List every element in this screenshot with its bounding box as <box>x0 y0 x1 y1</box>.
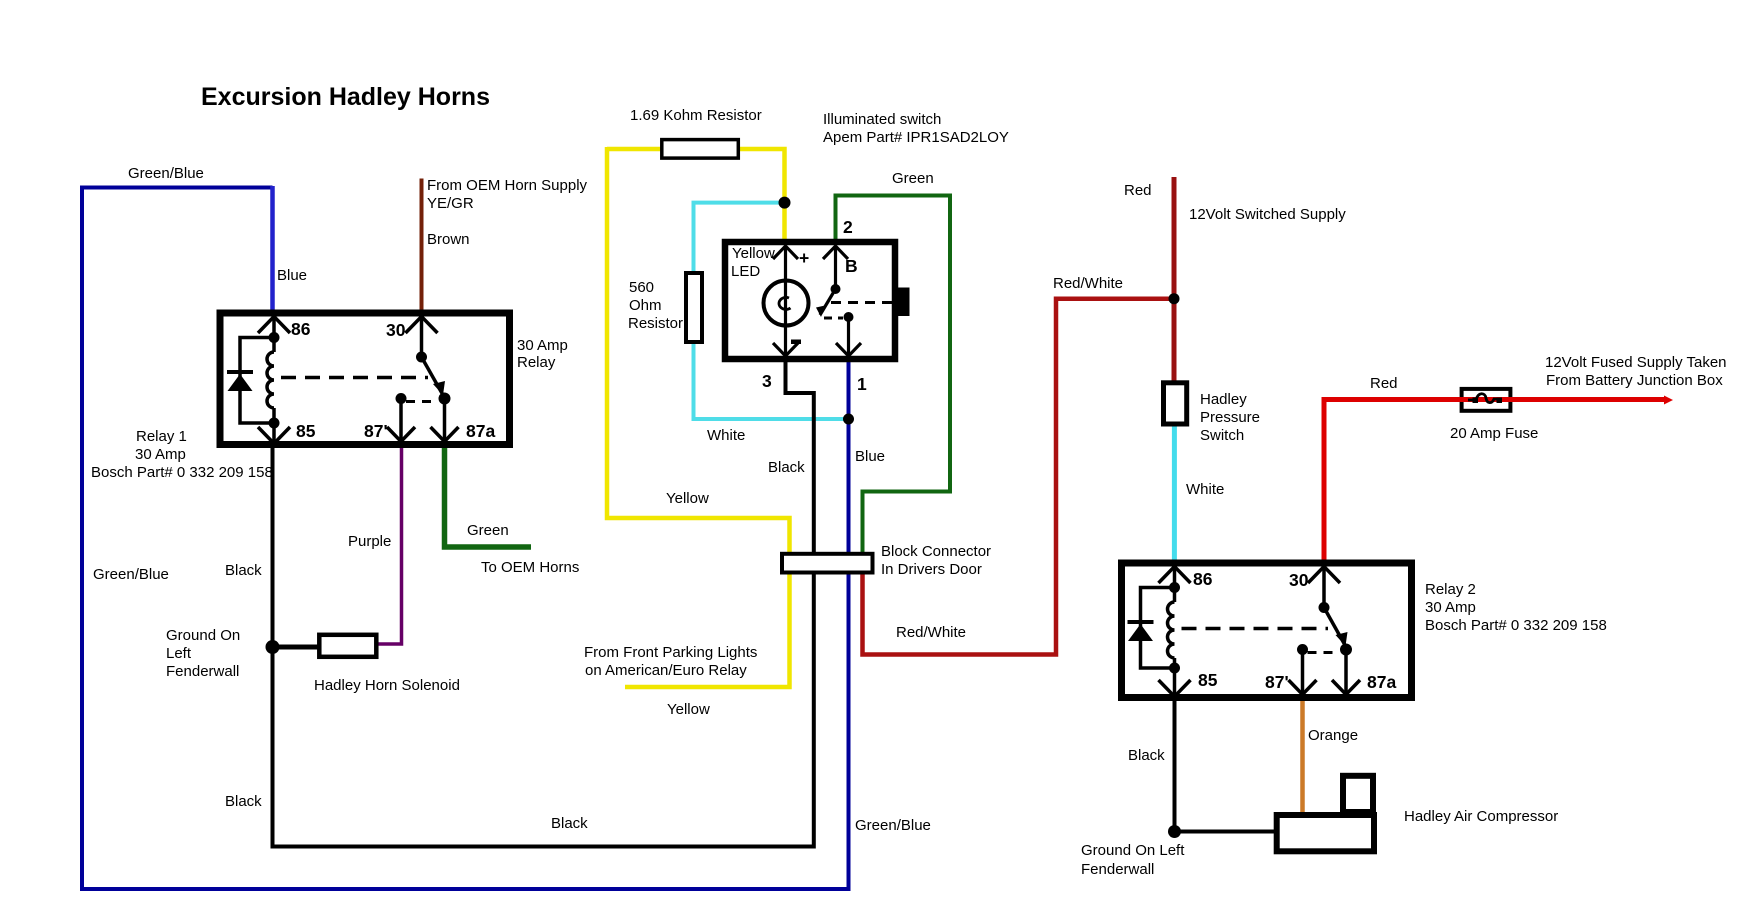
svg-text:560: 560 <box>629 279 654 296</box>
svg-text:Ground On: Ground On <box>166 627 240 644</box>
svg-text:Green: Green <box>892 170 934 187</box>
svg-text:Black: Black <box>551 815 588 832</box>
svg-text:30: 30 <box>386 320 406 340</box>
svg-text:Resistor: Resistor <box>628 315 683 332</box>
svg-text:From Front Parking Lights: From Front Parking Lights <box>584 644 757 661</box>
svg-text:Green/Blue: Green/Blue <box>855 817 931 834</box>
svg-text:Green/Blue: Green/Blue <box>128 165 204 182</box>
svg-text:87': 87' <box>1265 672 1289 692</box>
svg-text:Bosch Part# 0 332 209 158: Bosch Part# 0 332 209 158 <box>91 464 273 481</box>
svg-text:Fenderwall: Fenderwall <box>166 663 239 680</box>
svg-text:In Drivers Door: In Drivers Door <box>881 561 982 578</box>
svg-text:Black: Black <box>225 562 262 579</box>
svg-text:To OEM Horns: To OEM Horns <box>481 559 579 576</box>
svg-text:Ohm: Ohm <box>629 297 662 314</box>
svg-text:Switch: Switch <box>1200 427 1244 444</box>
svg-text:Illuminated switch: Illuminated switch <box>823 111 941 128</box>
svg-text:30 Amp: 30 Amp <box>1425 599 1476 616</box>
svg-text:Left: Left <box>166 645 192 662</box>
svg-text:Yellow: Yellow <box>666 490 709 507</box>
svg-text:87': 87' <box>364 421 388 441</box>
svg-text:1: 1 <box>857 374 867 394</box>
svg-text:+: + <box>799 248 809 268</box>
svg-text:LED: LED <box>731 263 760 280</box>
svg-text:Yellow: Yellow <box>732 245 775 262</box>
svg-text:Green: Green <box>467 522 509 539</box>
svg-text:Excursion Hadley Horns: Excursion Hadley Horns <box>201 83 490 111</box>
svg-text:Block Connector: Block Connector <box>881 543 991 560</box>
svg-text:30 Amp: 30 Amp <box>517 337 568 354</box>
svg-text:Red/White: Red/White <box>1053 275 1123 292</box>
svg-text:From Battery Junction Box: From Battery Junction Box <box>1546 372 1723 389</box>
svg-text:Hadley Horn Solenoid: Hadley Horn Solenoid <box>314 677 460 694</box>
svg-text:Red/White: Red/White <box>896 624 966 641</box>
svg-text:Blue: Blue <box>277 267 307 284</box>
svg-text:87a: 87a <box>466 421 495 441</box>
svg-text:From OEM Horn Supply: From OEM Horn Supply <box>427 177 588 194</box>
svg-text:Orange: Orange <box>1308 727 1358 744</box>
svg-text:Relay 2: Relay 2 <box>1425 581 1476 598</box>
svg-text:Apem Part# IPR1SAD2LOY: Apem Part# IPR1SAD2LOY <box>823 129 1009 146</box>
svg-text:Ground On Left: Ground On Left <box>1081 842 1185 859</box>
svg-text:85: 85 <box>1198 670 1218 690</box>
svg-text:Bosch Part# 0 332 209 158: Bosch Part# 0 332 209 158 <box>1425 617 1607 634</box>
svg-text:Relay: Relay <box>517 354 556 371</box>
svg-text:Purple: Purple <box>348 533 391 550</box>
svg-text:Relay 1: Relay 1 <box>136 428 187 445</box>
svg-text:Black: Black <box>225 793 262 810</box>
svg-text:Black: Black <box>1128 747 1165 764</box>
svg-text:YE/GR: YE/GR <box>427 195 474 212</box>
svg-text:86: 86 <box>291 319 311 339</box>
svg-text:30: 30 <box>1289 570 1309 590</box>
svg-text:12Volt Fused Supply Taken: 12Volt Fused Supply Taken <box>1545 354 1727 371</box>
svg-text:Red: Red <box>1370 375 1398 392</box>
svg-text:86: 86 <box>1193 569 1213 589</box>
svg-text:87a: 87a <box>1367 672 1396 692</box>
svg-text:Yellow: Yellow <box>667 701 710 718</box>
svg-text:B: B <box>845 256 858 276</box>
svg-text:Pressure: Pressure <box>1200 409 1260 426</box>
svg-text:Hadley Air Compressor: Hadley Air Compressor <box>1404 808 1558 825</box>
svg-text:Hadley: Hadley <box>1200 391 1247 408</box>
svg-text:Brown: Brown <box>427 231 470 248</box>
svg-text:1.69 Kohm Resistor: 1.69 Kohm Resistor <box>630 107 762 124</box>
svg-text:on American/Euro Relay: on American/Euro Relay <box>585 662 747 679</box>
svg-text:Black: Black <box>768 459 805 476</box>
svg-text:20 Amp Fuse: 20 Amp Fuse <box>1450 425 1538 442</box>
svg-text:Green/Blue: Green/Blue <box>93 566 169 583</box>
svg-text:12Volt Switched Supply: 12Volt Switched Supply <box>1189 206 1346 223</box>
svg-text:Red: Red <box>1124 182 1152 199</box>
svg-text:85: 85 <box>296 421 316 441</box>
svg-text:Fenderwall: Fenderwall <box>1081 861 1154 878</box>
svg-text:2: 2 <box>843 217 853 237</box>
svg-text:White: White <box>1186 481 1224 498</box>
svg-text:30 Amp: 30 Amp <box>135 446 186 463</box>
svg-text:3: 3 <box>762 371 772 391</box>
svg-text:White: White <box>707 427 745 444</box>
svg-text:Blue: Blue <box>855 448 885 465</box>
